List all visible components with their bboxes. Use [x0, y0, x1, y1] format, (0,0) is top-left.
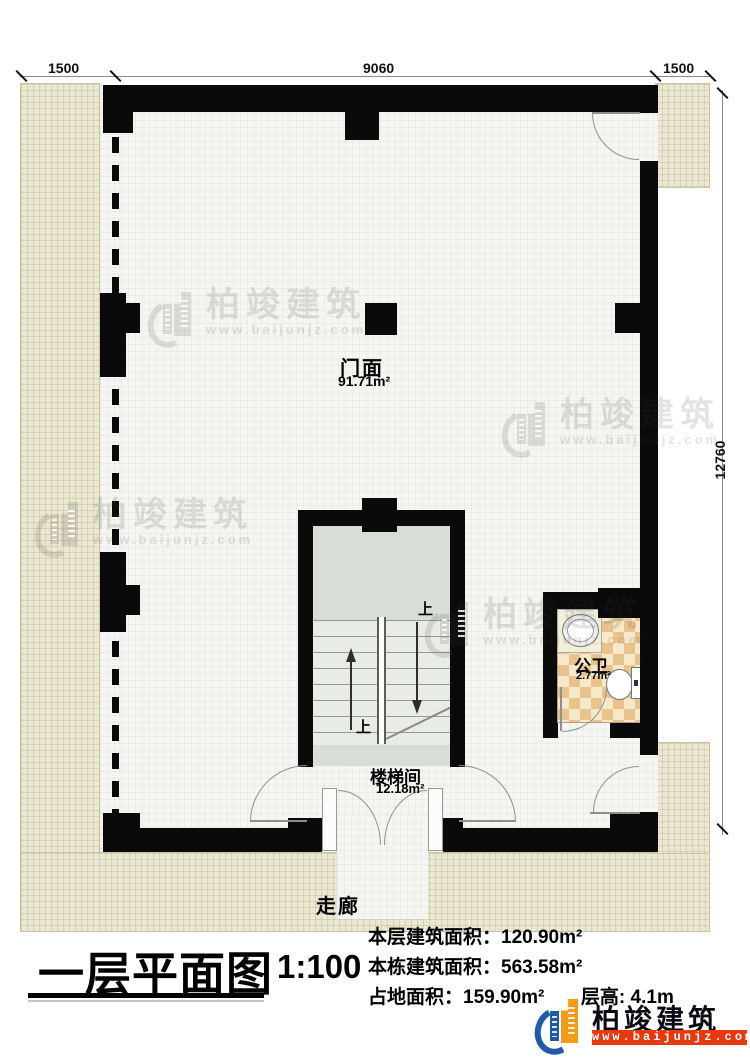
column-left-upper-notch [126, 303, 140, 333]
stair-arrow-up-shaft [350, 658, 352, 730]
stat-value: 159.90m² [463, 987, 544, 1008]
column-right-mid [615, 303, 642, 333]
room-area-stairwell: 12.18m² [376, 781, 424, 796]
room-label-corridor: 走廊 [316, 890, 360, 919]
exterior-strip-left [20, 83, 100, 932]
column-left-lower-notch [126, 585, 140, 615]
title-underline [28, 993, 264, 998]
corner-bottom-left [103, 813, 140, 852]
exterior-strip-right-bottom [655, 742, 710, 854]
plan-scale: 1:100 [277, 948, 361, 986]
room-area-toilet: 2.77m² [576, 670, 611, 682]
floor-plan-page: { "dimensions": { "top_left": "1500", "t… [0, 0, 750, 1062]
stair-arrow-up-head [346, 648, 356, 662]
wall-right-upper [640, 161, 658, 755]
toilet-wall-left [543, 592, 557, 738]
stat-value: 120.90m² [501, 927, 582, 948]
door-bottom-right-leaf [590, 812, 640, 814]
stair-divider [377, 617, 386, 744]
stat-floor-area: 本层建筑面积：120.90m² [368, 922, 582, 949]
dim-top-left: 1500 [48, 60, 79, 76]
entrance-jamb-right [428, 788, 443, 851]
stairwell-wall-right [450, 510, 465, 767]
stat-value: 563.58m² [501, 957, 582, 978]
room-area-storefront: 91.71m² [338, 373, 390, 389]
toilet-wall-bottom-right [610, 723, 658, 738]
stat-label: 本栋建筑面积： [368, 957, 501, 978]
sink-fixture [562, 614, 599, 647]
column-top-mid [345, 85, 379, 140]
brand-url: www.baijunjz.com [592, 1030, 747, 1045]
wall-bottom-right-seg [443, 828, 658, 852]
storefront-dashed-line [112, 137, 119, 815]
wall-top [103, 85, 658, 112]
corner-top-right [598, 85, 658, 113]
stair-arrow-down-head [412, 700, 422, 714]
exterior-strip-right-top [655, 83, 710, 188]
dim-top-mid: 9060 [363, 60, 394, 76]
toilet-tank-button [634, 680, 638, 686]
toilet-wall-bottom-left [543, 723, 558, 738]
column-free-center [365, 303, 397, 335]
stairwell-column-top [362, 498, 397, 532]
stair-arrow-down-shaft [416, 622, 418, 702]
dim-top-right: 1500 [663, 60, 694, 76]
brand-logo: 柏竣建筑 www.baijunjz.com [535, 993, 750, 1055]
entrance-jamb-left [322, 788, 337, 851]
dimension-line-top [20, 76, 710, 77]
stat-label: 本层建筑面积： [368, 927, 501, 948]
title-underline-shadow [28, 1000, 264, 1002]
stairwell-wall-left [298, 510, 313, 767]
stair-up-label-bottom: 上 [356, 716, 371, 737]
stair-up-label-top: 上 [418, 598, 433, 619]
dim-right-side: 12760 [712, 430, 728, 490]
stat-building-area: 本栋建筑面积：563.58m² [368, 952, 582, 979]
column-top-left [103, 85, 133, 133]
toilet-wall-top-right [598, 588, 643, 618]
stat-label: 占地面积： [368, 987, 463, 1008]
